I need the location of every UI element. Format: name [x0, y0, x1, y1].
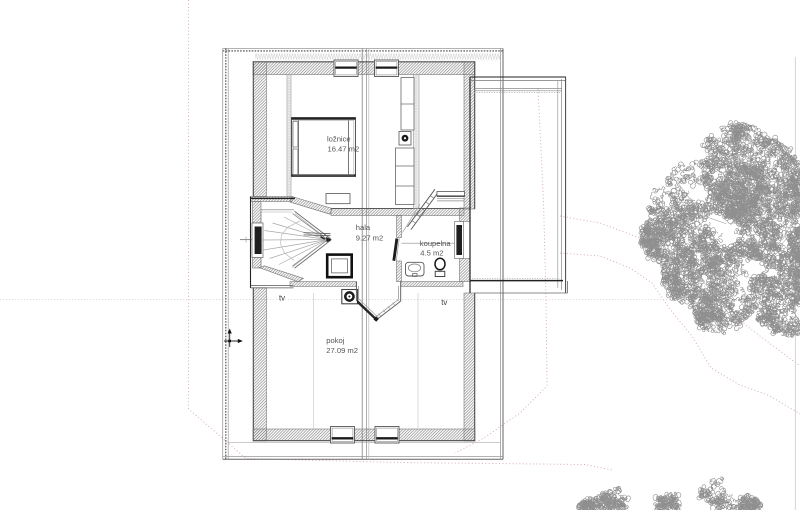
svg-text:9.27 m2: 9.27 m2 [356, 233, 383, 242]
svg-text:4.5 m2: 4.5 m2 [420, 249, 443, 258]
svg-text:tv: tv [441, 298, 447, 307]
svg-text:pokoj: pokoj [326, 336, 344, 345]
svg-text:27.09 m2: 27.09 m2 [326, 346, 358, 355]
svg-text:ložnice: ložnice [327, 135, 351, 144]
svg-text:hala: hala [356, 223, 371, 232]
svg-text:16.47 m2: 16.47 m2 [328, 145, 360, 154]
svg-text:koupelna: koupelna [420, 239, 452, 248]
svg-text:tv: tv [279, 293, 285, 302]
